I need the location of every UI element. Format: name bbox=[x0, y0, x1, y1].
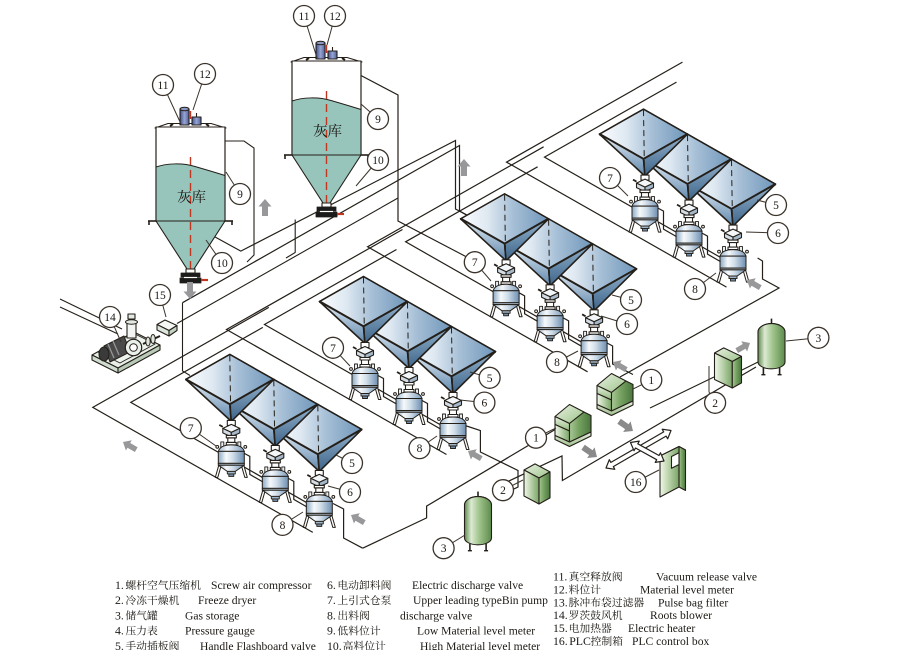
svg-text:5: 5 bbox=[628, 295, 634, 307]
svg-text:13.: 13. bbox=[553, 595, 568, 609]
svg-text:3: 3 bbox=[816, 333, 822, 345]
svg-text:Screw air compressor: Screw air compressor bbox=[211, 579, 312, 592]
svg-text:11: 11 bbox=[298, 11, 309, 23]
svg-text:1: 1 bbox=[533, 433, 539, 445]
svg-text:8: 8 bbox=[280, 520, 286, 532]
svg-text:15.: 15. bbox=[553, 621, 568, 635]
svg-text:6: 6 bbox=[624, 319, 630, 331]
svg-text:14.: 14. bbox=[553, 608, 568, 622]
svg-text:10: 10 bbox=[216, 258, 228, 270]
svg-text:PLC: PLC bbox=[569, 634, 591, 648]
svg-text:15: 15 bbox=[154, 290, 166, 302]
svg-text:4.: 4. bbox=[115, 624, 124, 638]
svg-text:7: 7 bbox=[330, 343, 336, 355]
svg-text:1.: 1. bbox=[115, 578, 124, 592]
svg-text:Electric discharge valve: Electric discharge valve bbox=[412, 579, 523, 592]
svg-text:Material level meter: Material level meter bbox=[640, 583, 734, 596]
svg-text:PLC control box: PLC control box bbox=[632, 635, 709, 648]
svg-text:6: 6 bbox=[347, 487, 353, 499]
svg-text:6.: 6. bbox=[327, 578, 336, 592]
svg-text:3.: 3. bbox=[115, 608, 124, 622]
svg-text:Electric heater: Electric heater bbox=[628, 622, 695, 635]
svg-text:11: 11 bbox=[157, 80, 168, 92]
svg-text:2.: 2. bbox=[115, 593, 124, 607]
svg-text:7.: 7. bbox=[327, 593, 336, 607]
svg-text:7: 7 bbox=[188, 423, 194, 435]
svg-text:8: 8 bbox=[692, 284, 698, 296]
svg-text:10.: 10. bbox=[327, 639, 342, 650]
svg-text:discharge valve: discharge valve bbox=[400, 609, 472, 622]
svg-text:2: 2 bbox=[712, 398, 718, 410]
svg-text:10: 10 bbox=[372, 155, 384, 167]
svg-text:Vacuum release valve: Vacuum release valve bbox=[656, 571, 757, 584]
svg-text:14: 14 bbox=[104, 312, 116, 324]
svg-text:8: 8 bbox=[554, 357, 560, 369]
svg-text:8: 8 bbox=[417, 443, 423, 455]
svg-text:Handle Flashboard valve: Handle Flashboard valve bbox=[200, 640, 316, 650]
svg-text:2: 2 bbox=[500, 485, 506, 497]
svg-text:Pressure gauge: Pressure gauge bbox=[185, 625, 255, 638]
svg-text:6: 6 bbox=[775, 228, 781, 240]
svg-text:9.: 9. bbox=[327, 624, 336, 638]
svg-text:12: 12 bbox=[329, 11, 341, 23]
svg-text:5.: 5. bbox=[115, 639, 124, 650]
svg-text:8.: 8. bbox=[327, 608, 336, 622]
svg-text:7: 7 bbox=[607, 173, 613, 185]
svg-text:9: 9 bbox=[237, 189, 243, 201]
svg-text:6: 6 bbox=[482, 398, 488, 410]
svg-text:Low Material level meter: Low Material level meter bbox=[417, 625, 535, 638]
svg-text:Roots blower: Roots blower bbox=[650, 609, 712, 622]
svg-text:7: 7 bbox=[472, 257, 478, 269]
svg-text:3: 3 bbox=[441, 543, 447, 555]
svg-text:5: 5 bbox=[487, 373, 493, 385]
svg-text:5: 5 bbox=[773, 200, 779, 212]
svg-text:Freeze dryer: Freeze dryer bbox=[198, 594, 256, 607]
svg-text:Gas storage: Gas storage bbox=[185, 609, 239, 622]
svg-text:16.: 16. bbox=[553, 634, 568, 648]
svg-text:12: 12 bbox=[199, 69, 211, 81]
svg-text:5: 5 bbox=[349, 458, 355, 470]
svg-text:12.: 12. bbox=[553, 582, 568, 596]
svg-text:Pulse bag filter: Pulse bag filter bbox=[658, 596, 728, 609]
svg-text:11.: 11. bbox=[553, 570, 567, 584]
svg-text:1: 1 bbox=[648, 375, 654, 387]
svg-text:9: 9 bbox=[375, 114, 381, 126]
svg-text:16: 16 bbox=[630, 477, 642, 489]
svg-text:Upper leading typeBin pump: Upper leading typeBin pump bbox=[413, 594, 548, 607]
svg-text:High Material level meter: High Material level meter bbox=[420, 640, 540, 650]
